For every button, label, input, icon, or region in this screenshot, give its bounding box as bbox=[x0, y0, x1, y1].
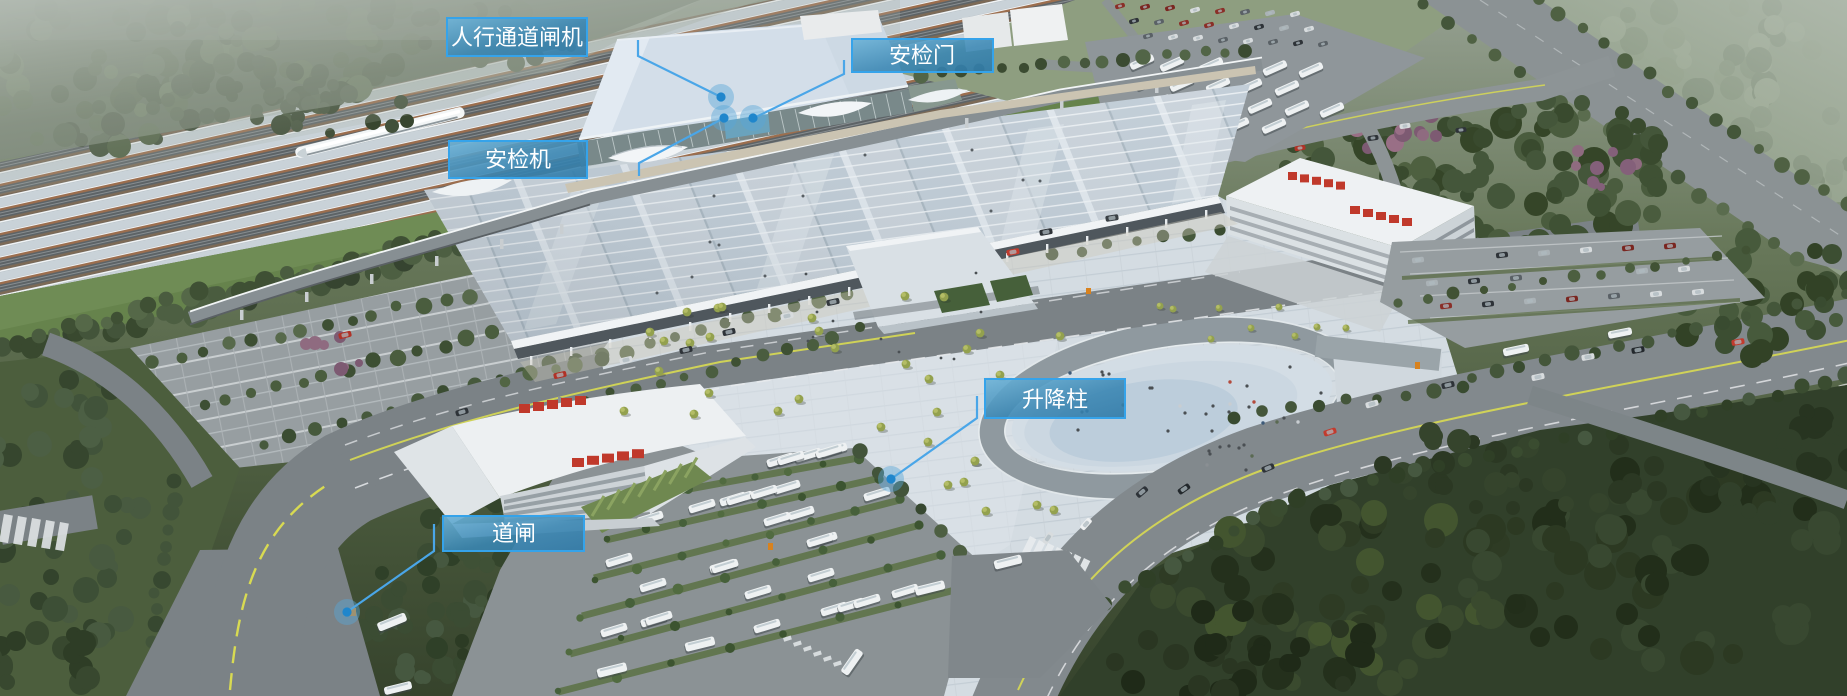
svg-text:升降柱: 升降柱 bbox=[1022, 387, 1088, 412]
svg-text:人行通道闸机: 人行通道闸机 bbox=[451, 25, 583, 50]
svg-text:安检机: 安检机 bbox=[485, 147, 551, 172]
svg-text:安检门: 安检门 bbox=[889, 43, 955, 68]
svg-text:道闸: 道闸 bbox=[492, 521, 536, 546]
